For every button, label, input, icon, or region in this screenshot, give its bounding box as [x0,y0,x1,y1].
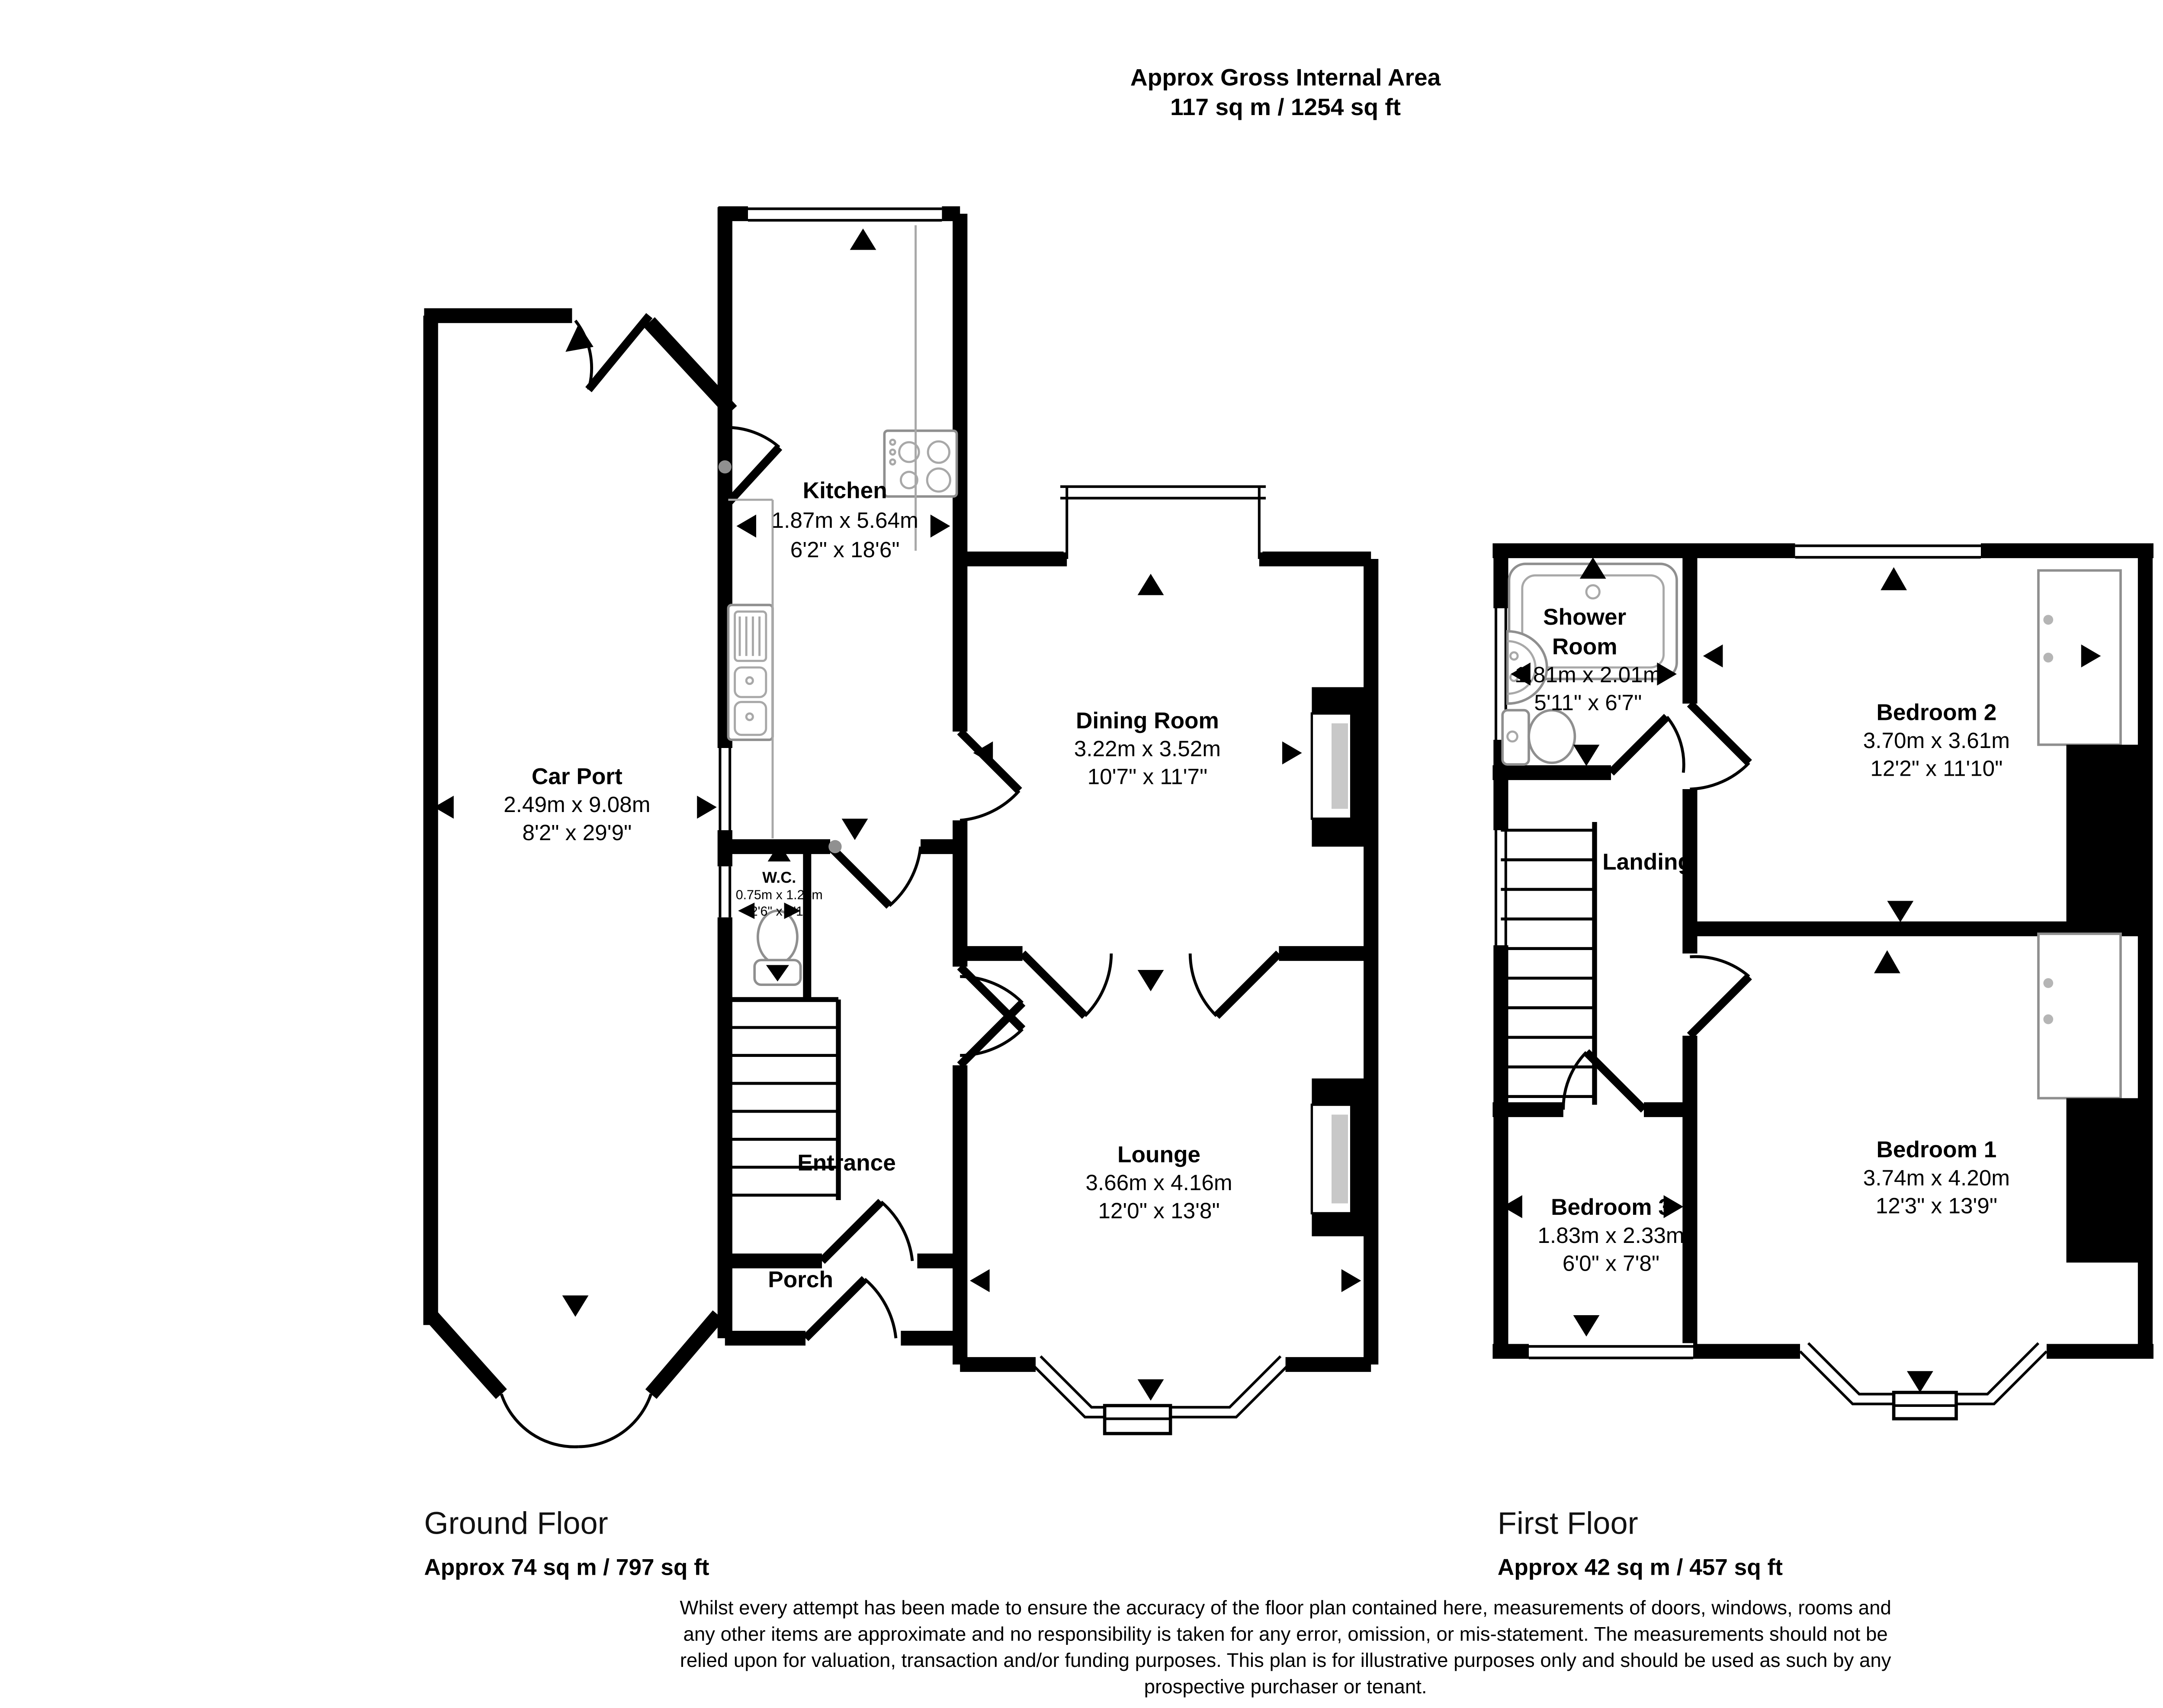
first-floor-plan: Shower Room 1.81m x 2.01m 5'11" x 6'7" B… [1492,541,2153,1419]
page-title: Approx Gross Internal Area 117 sq m / 12… [1130,64,1441,120]
entrance-label: Entrance [797,1150,896,1176]
car-port-metric: 2.49m x 9.08m [504,792,650,817]
floor-plan-drawing: Approx Gross Internal Area 117 sq m / 12… [0,0,2163,1708]
ground-floor-windows [717,204,1289,1433]
bedroom3-metric: 1.83m x 2.33m [1537,1223,1684,1248]
car-port-label: Car Port [532,764,623,790]
lounge-metric: 3.66m x 4.16m [1085,1170,1232,1195]
ground-floor-caption: Ground Floor [424,1506,608,1541]
first-floor-caption: First Floor [1498,1506,1638,1541]
shower-room-metric: 1.81m x 2.01m [1515,662,1661,687]
disclaimer-line2: any other items are approximate and no r… [683,1623,1887,1645]
car-port-imperial: 8'2" x 29'9" [522,820,632,845]
landing-label: Landing [1602,849,1692,875]
porch-label: Porch [768,1267,833,1292]
lounge-label: Lounge [1117,1142,1200,1168]
first-floor-stairs [1501,822,1595,1105]
disclaimer: Whilst every attempt has been made to en… [680,1597,1891,1698]
bedroom2-imperial: 12'2" x 11'10" [1870,756,2003,781]
ground-floor-area: Approx 74 sq m / 797 sq ft [424,1554,709,1580]
bedroom2-metric: 3.70m x 3.61m [1863,728,2010,753]
dining-room-metric: 3.22m x 3.52m [1074,736,1221,761]
title-line1: Approx Gross Internal Area [1130,64,1441,91]
shower-room-imperial: 5'11" x 6'7" [1534,690,1642,715]
first-floor-toilet-icon [1502,710,1575,764]
ground-floor-plan: Car Port 2.49m x 9.08m 8'2" x 29'9" Kitc… [424,204,1374,1447]
wc-metric: 0.75m x 1.24m [736,888,823,902]
first-floor-room-labels: Shower Room 1.81m x 2.01m 5'11" x 6'7" B… [1515,604,2010,1275]
dining-room-label: Dining Room [1076,708,1219,733]
bedroom1-imperial: 12'3" x 13'9" [1876,1193,1997,1218]
bedroom1-label: Bedroom 1 [1876,1137,1996,1162]
first-floor-chimneys-wardrobes [2038,571,2145,1263]
lounge-imperial: 12'0" x 13'8" [1098,1198,1219,1223]
bedroom3-imperial: 6'0" x 7'8" [1563,1251,1659,1275]
title-line2: 117 sq m / 1254 sq ft [1170,93,1401,120]
floor-plan-page: Approx Gross Internal Area 117 sq m / 12… [0,0,2163,1708]
bedroom2-label: Bedroom 2 [1876,700,1996,725]
shower-room-label1: Shower [1543,604,1626,630]
bedroom1-metric: 3.74m x 4.20m [1863,1165,2010,1190]
disclaimer-line4: prospective purchaser or tenant. [1144,1676,1427,1698]
kitchen-label: Kitchen [803,478,887,503]
wc-label: W.C. [762,869,796,886]
kitchen-sink-icon [728,605,773,740]
bedroom3-label: Bedroom 3 [1551,1194,1671,1220]
floor-captions: Ground Floor Approx 74 sq m / 797 sq ft … [424,1506,1783,1580]
wc-imperial: 2'6" x 4'1" [751,904,808,919]
kitchen-metric: 1.87m x 5.64m [772,508,918,533]
first-floor-area: Approx 42 sq m / 457 sq ft [1498,1554,1783,1580]
dining-room-imperial: 10'7" x 11'7" [1088,764,1208,789]
shower-room-label2: Room [1552,634,1617,659]
disclaimer-line1: Whilst every attempt has been made to en… [680,1597,1891,1619]
disclaimer-line3: relied upon for valuation, transaction a… [680,1649,1891,1671]
kitchen-imperial: 6'2" x 18'6" [790,537,900,562]
first-floor-doors [1563,703,1749,1110]
kitchen-hob-icon [884,431,956,497]
